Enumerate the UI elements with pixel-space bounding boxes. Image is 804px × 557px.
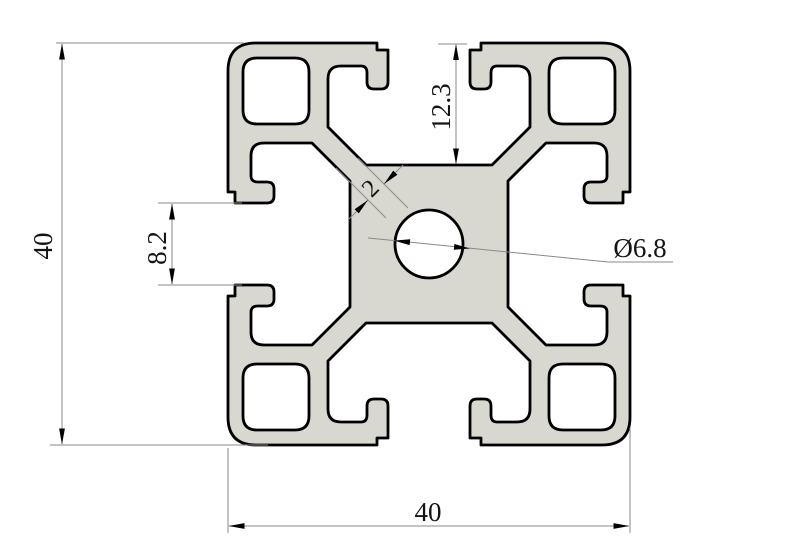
label-overall-height: 40 [28, 233, 58, 260]
technical-drawing-canvas: 40 40 12.3 8.2 2 Ø6.8 [0, 0, 804, 557]
label-overall-width: 40 [415, 497, 442, 527]
dimension-arrowhead [229, 523, 245, 529]
dimension-arrowhead [453, 149, 459, 165]
dimension-arrowhead [59, 429, 65, 445]
dimension-arrowhead [614, 523, 630, 529]
label-center-hole-diameter: Ø6.8 [613, 233, 666, 263]
dimension-arrowhead [59, 44, 65, 60]
dimension-arrowhead [169, 269, 175, 285]
dimension-arrowhead [453, 44, 459, 60]
dimension-arrowhead [169, 204, 175, 220]
label-slot-opening: 8.2 [142, 231, 172, 265]
profile-drawing: 40 40 12.3 8.2 2 Ø6.8 [0, 0, 804, 557]
label-slot-depth: 12.3 [426, 83, 456, 130]
